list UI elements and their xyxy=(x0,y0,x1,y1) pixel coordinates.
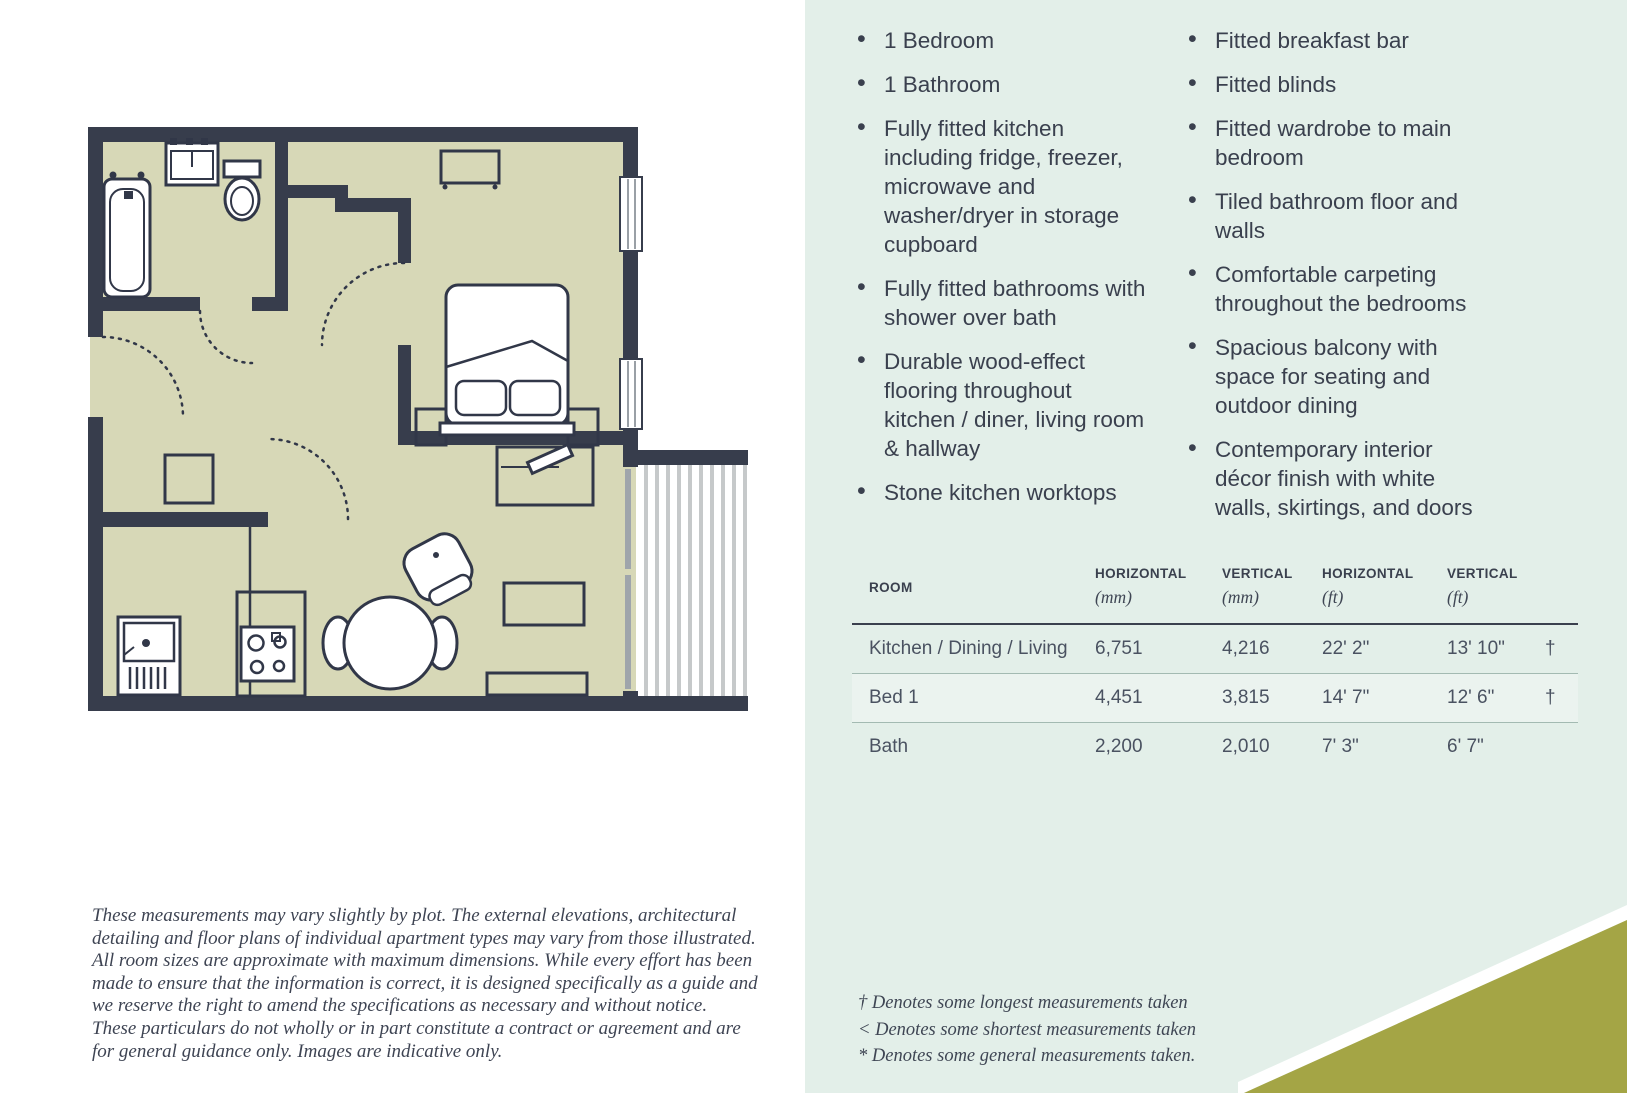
column-header-room: ROOM xyxy=(869,580,1095,595)
horizontal-mm-value: 6,751 xyxy=(1095,638,1222,660)
column-unit-ft: (ft) xyxy=(1447,587,1545,608)
fridge-unit xyxy=(118,617,180,695)
footnote-general: * Denotes some general measurements take… xyxy=(858,1043,1196,1070)
disclaimer-paragraph-1: These measurements may vary slightly by … xyxy=(92,905,764,1018)
vertical-ft-value: 6' 7" xyxy=(1447,736,1545,758)
disclaimer-paragraph-2: These particulars do not wholly or in pa… xyxy=(92,1018,764,1063)
corner-accent xyxy=(1200,860,1627,1093)
room-name: Bath xyxy=(852,736,1095,758)
feature-item: Fitted breakfast bar xyxy=(1179,26,1484,55)
feature-list-left: 1 Bedroom 1 Bathroom Fully fitted kitche… xyxy=(848,26,1148,522)
corner-olive-triangle xyxy=(1244,920,1627,1093)
feature-item: 1 Bathroom xyxy=(848,70,1148,99)
footnote-dagger: † Denotes some longest measurements take… xyxy=(858,990,1196,1017)
table-row: Bath 2,200 2,010 7' 3" 6' 7" xyxy=(852,723,1578,771)
dagger-note: † xyxy=(1545,687,1578,709)
horizontal-ft-value: 7' 3" xyxy=(1322,736,1447,758)
horizontal-ft-value: 22' 2" xyxy=(1322,638,1447,660)
room-dimensions-table: ROOM HORIZONTAL (mm) VERTICAL (mm) HORIZ… xyxy=(852,556,1578,771)
table-header-row: ROOM HORIZONTAL (mm) VERTICAL (mm) HORIZ… xyxy=(852,556,1578,625)
feature-item: Fitted blinds xyxy=(1179,70,1484,99)
column-header-horizontal-ft: HORIZONTAL xyxy=(1322,566,1447,581)
balcony xyxy=(638,450,748,711)
feature-item: Fitted wardrobe to main bedroom xyxy=(1179,114,1484,172)
table-row: Kitchen / Dining / Living 6,751 4,216 22… xyxy=(852,625,1578,674)
horizontal-mm-value: 2,200 xyxy=(1095,736,1222,758)
vertical-ft-value: 13' 10" xyxy=(1447,638,1545,660)
vertical-mm-value: 2,010 xyxy=(1222,736,1322,758)
feature-item: Comfortable carpeting throughout the bed… xyxy=(1179,260,1484,318)
feature-item: Spacious balcony with space for seating … xyxy=(1179,333,1484,420)
horizontal-mm-value: 4,451 xyxy=(1095,687,1222,709)
column-header-vertical-mm: VERTICAL xyxy=(1222,566,1322,581)
feature-item: 1 Bedroom xyxy=(848,26,1148,55)
vertical-mm-value: 3,815 xyxy=(1222,687,1322,709)
feature-item: Fully fitted kitchen including fridge, f… xyxy=(848,114,1148,259)
bathtub xyxy=(104,172,150,298)
column-unit-mm: (mm) xyxy=(1222,587,1322,608)
floor-plan xyxy=(80,115,770,725)
feature-item: Stone kitchen worktops xyxy=(848,478,1148,507)
disclaimer-text: These measurements may vary slightly by … xyxy=(92,905,764,1063)
feature-item: Durable wood-effect flooring throughout … xyxy=(848,347,1148,463)
horizontal-ft-value: 14' 7" xyxy=(1322,687,1447,709)
hob xyxy=(241,627,294,681)
column-header-horizontal-mm: HORIZONTAL xyxy=(1095,566,1222,581)
balcony-sliding-door xyxy=(625,469,631,689)
column-unit-mm: (mm) xyxy=(1095,587,1222,608)
feature-list-right: Fitted breakfast bar Fitted blinds Fitte… xyxy=(1179,26,1484,537)
feature-item: Fully fitted bathrooms with shower over … xyxy=(848,274,1148,332)
table-row: Bed 1 4,451 3,815 14' 7" 12' 6" † xyxy=(852,674,1578,723)
room-name: Bed 1 xyxy=(852,687,1095,709)
sink xyxy=(166,138,218,185)
column-header-vertical-ft: VERTICAL xyxy=(1447,566,1545,581)
vertical-ft-value: 12' 6" xyxy=(1447,687,1545,709)
room-name: Kitchen / Dining / Living xyxy=(852,638,1095,660)
vertical-mm-value: 4,216 xyxy=(1222,638,1322,660)
bed xyxy=(440,285,574,435)
dagger-note: † xyxy=(1545,638,1578,660)
toilet xyxy=(224,161,260,220)
measurement-footnotes: † Denotes some longest measurements take… xyxy=(858,990,1196,1070)
feature-item: Tiled bathroom floor and walls xyxy=(1179,187,1484,245)
column-unit-ft: (ft) xyxy=(1322,587,1447,608)
feature-item: Contemporary interior décor finish with … xyxy=(1179,435,1484,522)
footnote-shortest: < Denotes some shortest measurements tak… xyxy=(858,1017,1196,1044)
